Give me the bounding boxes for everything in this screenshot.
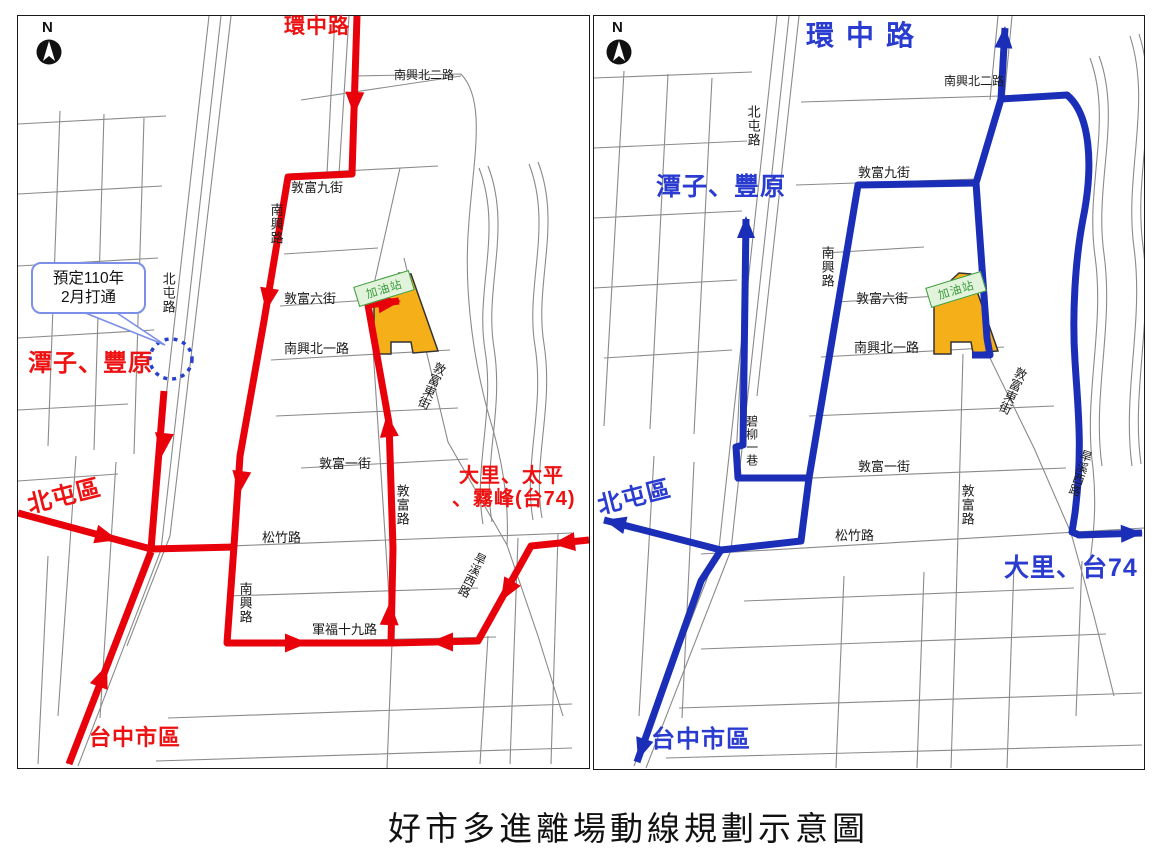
street-label: 碧柳一巷 <box>745 415 758 467</box>
street-label: 敦富路 <box>960 484 974 526</box>
costco-traffic-plan-page: N 預定110年 2月打通 加油站 南興北二路敦富九街敦富六街南興北一路敦富一街… <box>0 0 1176 851</box>
destination-label: 潭子、豐原 <box>656 174 786 200</box>
destination-label: 大里、太平 <box>459 466 564 487</box>
destination-label: 台中市區 <box>651 727 751 752</box>
destination-label: 北屯區 <box>25 475 104 518</box>
street-label: 松竹路 <box>262 531 301 545</box>
gas-station-label: 加油站 <box>936 276 977 302</box>
street-label: 南興路 <box>269 203 283 245</box>
destination-label: 環中路 <box>806 21 926 50</box>
entry-map-panel: N 預定110年 2月打通 加油站 南興北二路敦富九街敦富六街南興北一路敦富一街… <box>17 15 590 769</box>
street-label: 旱溪西路 <box>1066 448 1093 498</box>
destination-label: 潭子、豐原 <box>28 351 153 376</box>
street-label: 南興北二路 <box>394 69 454 82</box>
destination-label: 環中路 <box>284 16 350 38</box>
destination-label: 台中市區 <box>89 726 181 749</box>
callout-line1: 預定110年 <box>53 269 124 288</box>
destination-label: 大里、台74 <box>1004 555 1138 581</box>
callout-line2: 2月打通 <box>61 288 116 307</box>
compass-n-label: N <box>612 19 623 36</box>
street-label: 軍福十九路 <box>312 623 377 637</box>
street-label: 敦富一街 <box>319 457 371 471</box>
street-label: 南興路 <box>238 582 252 624</box>
street-label: 敦富東街 <box>995 364 1027 415</box>
gas-station-box: 加油站 <box>353 270 415 307</box>
street-label: 敦富路 <box>395 484 409 526</box>
exit-map-panel: N 加油站 南興北二路敦富九街敦富六街南興北一路敦富一街松竹路北屯路南興路碧柳一… <box>593 15 1145 770</box>
street-label: 敦富東街 <box>414 359 446 410</box>
planned-opening-callout: 預定110年 2月打通 <box>31 262 146 314</box>
destination-label: 北屯區 <box>595 476 674 519</box>
street-label: 北屯路 <box>746 105 760 147</box>
street-label: 旱溪西路 <box>456 550 488 599</box>
gas-station-box: 加油站 <box>925 271 987 308</box>
street-label: 敦富九街 <box>858 166 910 180</box>
street-label: 敦富九街 <box>291 181 343 195</box>
entry-map-labels: N 預定110年 2月打通 加油站 南興北二路敦富九街敦富六街南興北一路敦富一街… <box>18 16 589 768</box>
street-label: 敦富六街 <box>856 292 908 306</box>
street-label: 南興北一路 <box>284 342 349 356</box>
street-label: 敦富六街 <box>284 292 336 306</box>
street-label: 南興路 <box>820 246 834 288</box>
street-label: 松竹路 <box>835 529 874 543</box>
destination-label: 、霧峰(台74) <box>452 489 576 510</box>
exit-map-labels: N 加油站 南興北二路敦富九街敦富六街南興北一路敦富一街松竹路北屯路南興路碧柳一… <box>594 16 1144 769</box>
street-label: 南興北二路 <box>944 75 1004 88</box>
street-label: 北屯路 <box>161 272 175 314</box>
street-label: 敦富一街 <box>858 460 910 474</box>
gas-station-label: 加油站 <box>364 275 405 301</box>
figure-caption: 好市多進離場動線規劃示意圖 <box>388 802 869 850</box>
street-label: 南興北一路 <box>854 341 919 355</box>
compass-n-label: N <box>42 19 53 36</box>
